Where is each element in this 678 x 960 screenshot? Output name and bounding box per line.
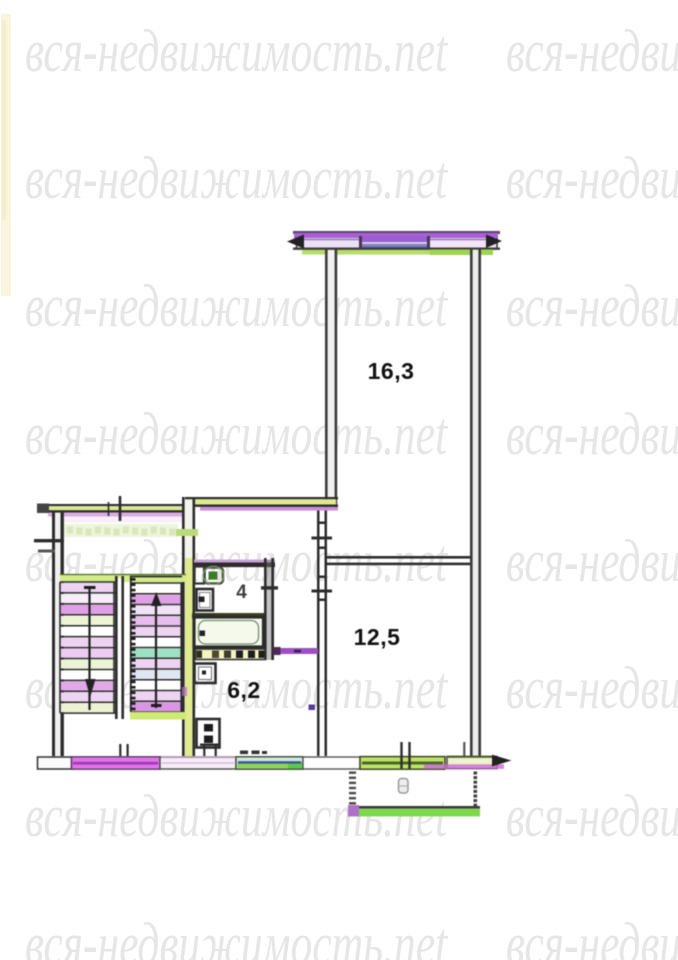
svg-text:16,3: 16,3 [368,358,415,384]
svg-text:6,2: 6,2 [227,677,260,703]
svg-text:12,5: 12,5 [354,624,401,650]
svg-text:4: 4 [236,582,247,603]
